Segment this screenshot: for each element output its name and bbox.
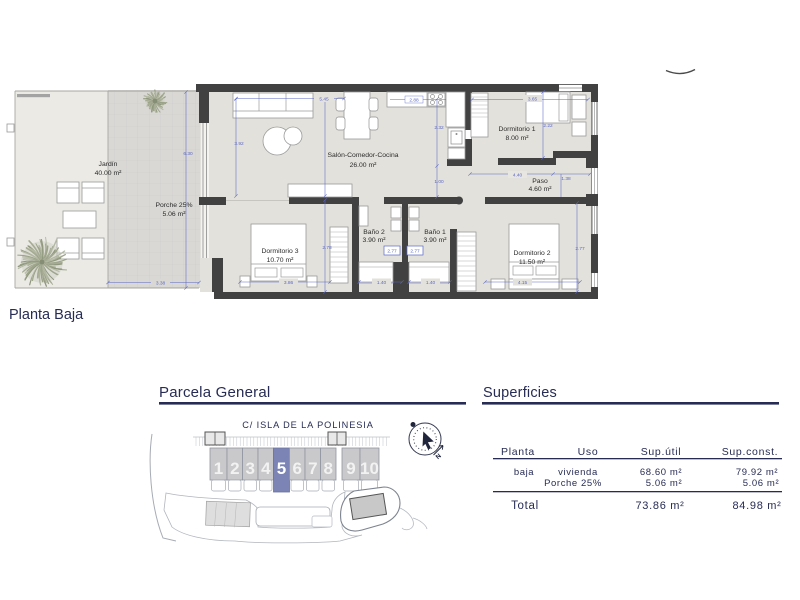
svg-text:1: 1 xyxy=(214,459,223,478)
svg-text:10.70 m²: 10.70 m² xyxy=(267,257,295,264)
svg-text:26.00 m²: 26.00 m² xyxy=(350,162,378,169)
svg-text:10: 10 xyxy=(360,459,379,478)
svg-text:5.45: 5.45 xyxy=(319,97,329,103)
svg-text:Porche 25%: Porche 25% xyxy=(544,478,602,489)
svg-text:3.90 m²: 3.90 m² xyxy=(362,237,386,244)
svg-text:1.40: 1.40 xyxy=(426,280,436,286)
svg-text:3: 3 xyxy=(245,459,254,478)
svg-text:68.60 m²: 68.60 m² xyxy=(640,467,682,478)
svg-text:Superficies: Superficies xyxy=(483,385,557,401)
svg-text:N: N xyxy=(435,452,443,461)
svg-text:11.50 m²: 11.50 m² xyxy=(519,259,546,266)
svg-text:4.15: 4.15 xyxy=(518,280,528,286)
svg-text:2.77: 2.77 xyxy=(387,249,397,255)
svg-text:3.90 m²: 3.90 m² xyxy=(423,237,447,244)
svg-text:1.00: 1.00 xyxy=(434,179,444,185)
svg-text:Dormitorio 2: Dormitorio 2 xyxy=(513,250,550,257)
svg-text:3.92: 3.92 xyxy=(234,141,244,147)
svg-text:Planta Baja: Planta Baja xyxy=(9,307,84,323)
svg-text:Paso: Paso xyxy=(532,178,548,185)
svg-text:2.77: 2.77 xyxy=(410,249,420,255)
svg-text:Dormitorio 1: Dormitorio 1 xyxy=(498,126,535,133)
svg-text:5.06 m²: 5.06 m² xyxy=(162,211,186,218)
svg-text:79.92 m²: 79.92 m² xyxy=(736,467,778,478)
svg-text:5: 5 xyxy=(277,459,286,478)
svg-text:C/ ISLA DE LA POLINESIA: C/ ISLA DE LA POLINESIA xyxy=(242,420,374,430)
svg-text:2.32: 2.32 xyxy=(434,125,444,131)
svg-text:Jardín: Jardín xyxy=(99,161,118,168)
svg-text:Baño 2: Baño 2 xyxy=(363,229,385,236)
svg-text:5.06 m²: 5.06 m² xyxy=(743,478,779,489)
svg-text:2.88: 2.88 xyxy=(409,98,419,104)
svg-text:73.86 m²: 73.86 m² xyxy=(635,500,684,512)
svg-text:Total: Total xyxy=(511,500,539,512)
svg-text:4.40: 4.40 xyxy=(513,173,523,179)
svg-text:1.38: 1.38 xyxy=(561,176,571,182)
svg-text:Parcela General: Parcela General xyxy=(159,384,270,401)
svg-text:2.77: 2.77 xyxy=(575,246,585,252)
svg-text:84.98 m²: 84.98 m² xyxy=(732,500,781,512)
svg-text:6: 6 xyxy=(292,459,301,478)
svg-text:Baño 1: Baño 1 xyxy=(424,229,446,236)
svg-text:8.00 m²: 8.00 m² xyxy=(505,135,529,142)
svg-text:2.78: 2.78 xyxy=(322,245,332,251)
svg-text:2: 2 xyxy=(230,459,239,478)
svg-text:8: 8 xyxy=(323,459,332,478)
svg-text:4.60 m²: 4.60 m² xyxy=(528,186,552,193)
svg-text:2.22: 2.22 xyxy=(543,123,553,129)
svg-text:5.06 m²: 5.06 m² xyxy=(646,478,682,489)
svg-text:7: 7 xyxy=(308,459,317,478)
svg-text:6.30: 6.30 xyxy=(183,151,193,157)
svg-text:vivienda: vivienda xyxy=(558,467,598,478)
svg-text:3.86: 3.86 xyxy=(284,280,294,286)
svg-text:1.40: 1.40 xyxy=(377,280,387,286)
svg-text:3.38: 3.38 xyxy=(156,281,166,287)
svg-text:Uso: Uso xyxy=(578,446,599,458)
svg-text:40.00 m²: 40.00 m² xyxy=(95,170,123,177)
svg-text:Sup.útil: Sup.útil xyxy=(641,446,682,458)
svg-text:Porche 25%: Porche 25% xyxy=(155,202,192,209)
svg-text:3.65: 3.65 xyxy=(528,97,538,103)
svg-text:Dormitorio 3: Dormitorio 3 xyxy=(261,248,298,255)
svg-text:Sup.const.: Sup.const. xyxy=(722,446,779,458)
svg-text:Planta: Planta xyxy=(501,446,535,458)
svg-text:Salón-Comedor-Cocina: Salón-Comedor-Cocina xyxy=(327,152,398,159)
svg-text:9: 9 xyxy=(346,459,355,478)
svg-text:baja: baja xyxy=(514,467,534,478)
svg-text:4: 4 xyxy=(261,459,271,478)
